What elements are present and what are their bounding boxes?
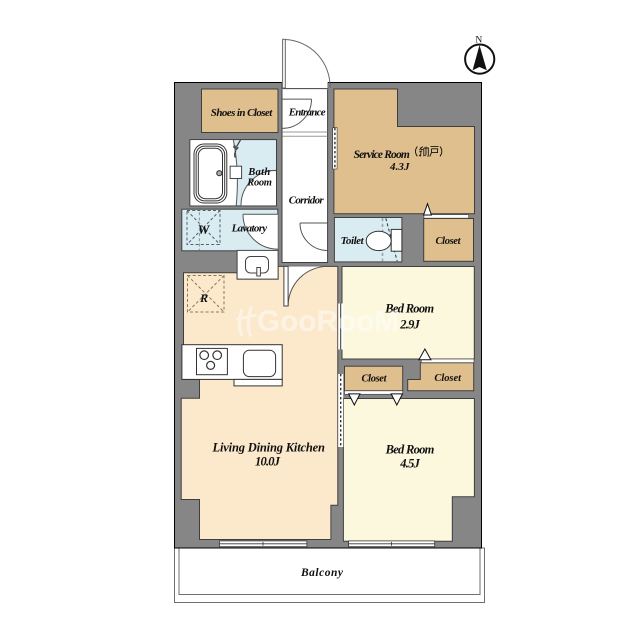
svg-text:Bed Room: Bed Room	[385, 443, 435, 457]
svg-text:W: W	[198, 222, 211, 237]
svg-text:Lavatory: Lavatory	[231, 223, 268, 235]
svg-text:Toilet: Toilet	[341, 235, 365, 247]
svg-text:Corridor: Corridor	[289, 195, 325, 207]
svg-text:Shoes in Closet: Shoes in Closet	[211, 107, 273, 119]
svg-text:N: N	[475, 36, 482, 46]
svg-text:10.0J: 10.0J	[255, 455, 281, 469]
svg-text:4.3J: 4.3J	[389, 161, 410, 173]
svg-text:Room: Room	[246, 177, 272, 188]
svg-text:2.9J: 2.9J	[399, 317, 420, 331]
svg-text:Closet: Closet	[436, 236, 462, 247]
svg-text:R: R	[199, 291, 208, 305]
svg-text:GooRooM: GooRooM	[257, 305, 399, 338]
svg-text:4.5J: 4.5J	[399, 456, 420, 470]
svg-text:Entrance: Entrance	[288, 107, 326, 119]
svg-text:Bath: Bath	[247, 167, 270, 178]
svg-text:Living Dining Kitchen: Living Dining Kitchen	[212, 441, 326, 455]
svg-text:Closet: Closet	[362, 373, 388, 384]
svg-text:Balcony: Balcony	[300, 567, 344, 579]
svg-text:Service Room: Service Room	[354, 149, 410, 161]
svg-text:Closet: Closet	[434, 373, 462, 384]
